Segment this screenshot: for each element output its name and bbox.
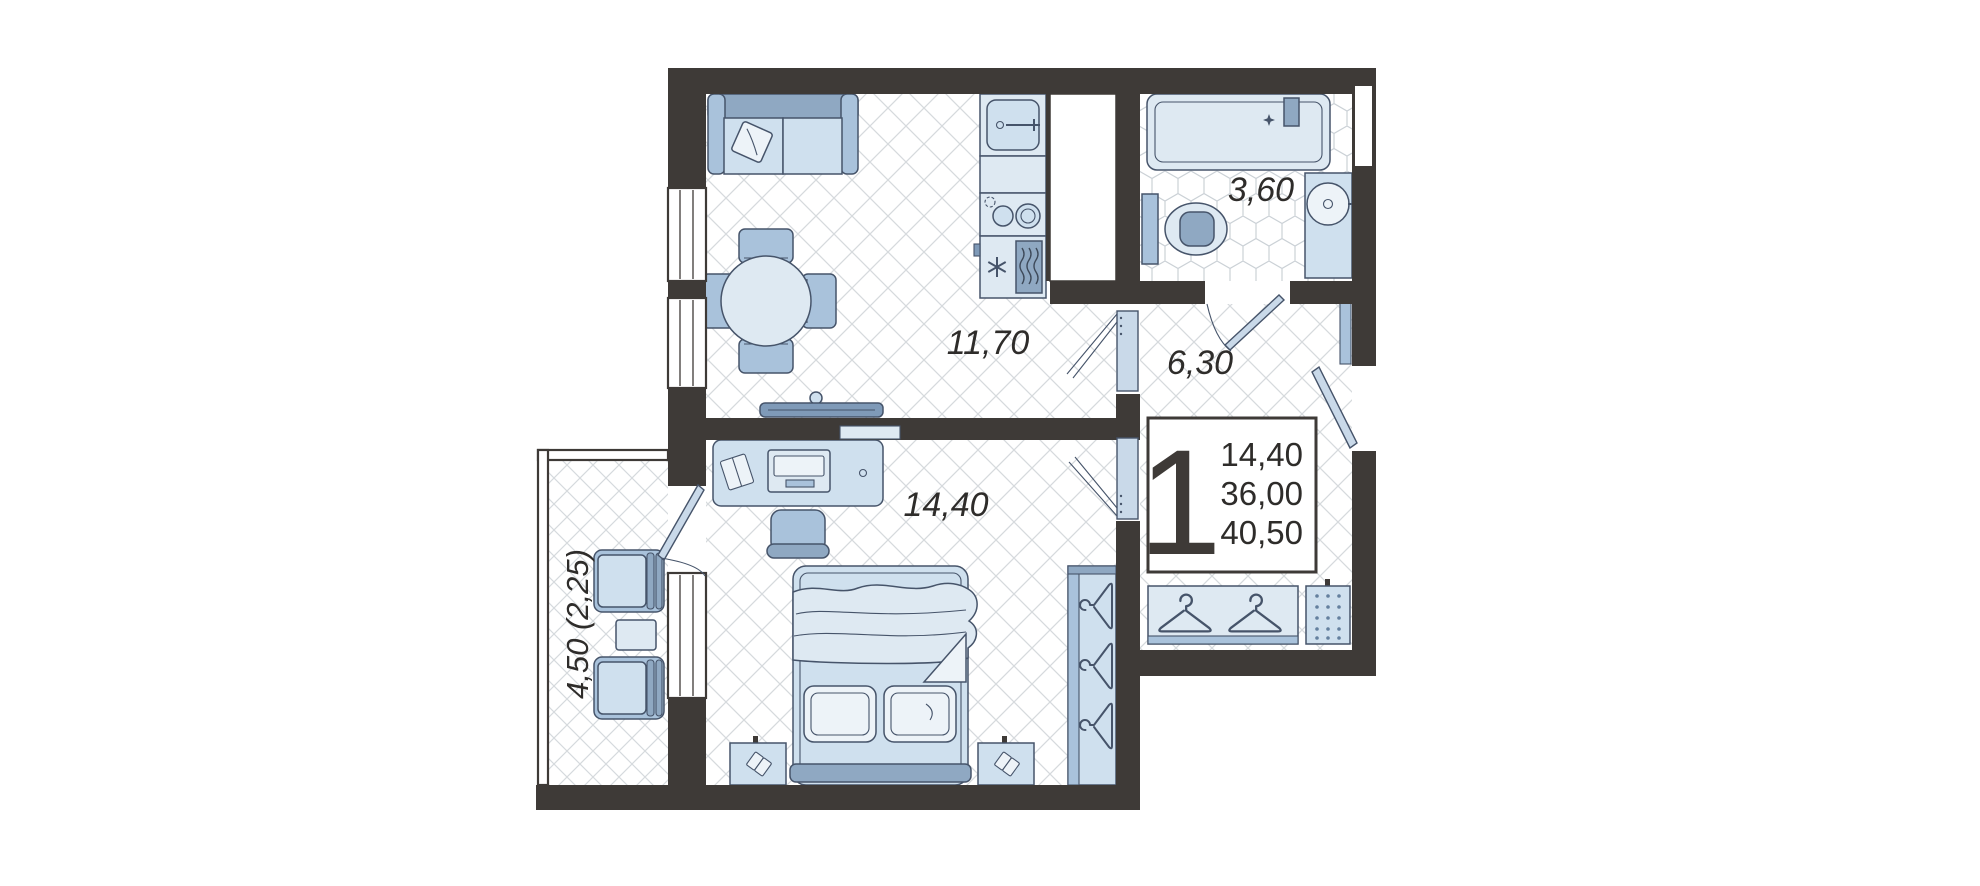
bedroom-label: 14,40 xyxy=(903,486,988,524)
vent-slot xyxy=(1355,86,1372,166)
laptop xyxy=(768,450,830,492)
rooms-count: 1 xyxy=(1138,418,1221,586)
stove xyxy=(980,193,1046,236)
bathtub xyxy=(1147,94,1330,170)
info-box: 1 14,40 36,00 40,50 xyxy=(1138,418,1316,586)
apartment-area-value: 36,00 xyxy=(1220,475,1303,512)
vent-shaft xyxy=(1050,94,1116,281)
balcony-wall xyxy=(538,450,668,460)
kitchen-sink xyxy=(980,94,1046,156)
nightstand xyxy=(730,736,786,785)
hallway-label: 6,30 xyxy=(1167,344,1233,382)
headboard xyxy=(790,764,971,782)
kitchen-zone xyxy=(974,94,1046,298)
desk-chair xyxy=(767,510,829,558)
balcony-wall xyxy=(538,450,548,785)
nightstand xyxy=(978,736,1034,785)
floor-plan-page: 1 14,40 36,00 40,50 11,70 6,30 3,60 14,4… xyxy=(0,0,1980,886)
blanket xyxy=(793,583,977,663)
balcony-chair xyxy=(594,657,664,719)
bathroom-sink xyxy=(1305,173,1360,278)
sofa xyxy=(708,94,858,174)
wardrobe xyxy=(1068,566,1116,785)
balcony-table xyxy=(616,620,656,650)
window xyxy=(668,188,706,281)
total-area-value: 40,50 xyxy=(1220,514,1303,551)
pillow xyxy=(884,686,956,742)
wall-shelf xyxy=(840,426,900,439)
balcony-window xyxy=(668,573,706,698)
doormat xyxy=(1306,579,1350,644)
fridge-washer-unit xyxy=(974,236,1046,298)
balcony-chair xyxy=(594,550,664,612)
floor-plan: 1 14,40 36,00 40,50 11,70 6,30 3,60 14,4… xyxy=(528,36,1388,816)
coat-rack xyxy=(1148,586,1298,644)
window xyxy=(668,298,706,388)
balcony-label: 4,50 (2,25) xyxy=(560,549,595,699)
bed xyxy=(790,566,977,785)
desk xyxy=(713,440,883,506)
bathroom-label: 3,60 xyxy=(1228,171,1294,209)
kitchen-counter xyxy=(980,156,1046,193)
pillow xyxy=(804,686,876,742)
living-area-value: 14,40 xyxy=(1220,436,1303,473)
living-kitchen-label: 11,70 xyxy=(947,324,1030,362)
